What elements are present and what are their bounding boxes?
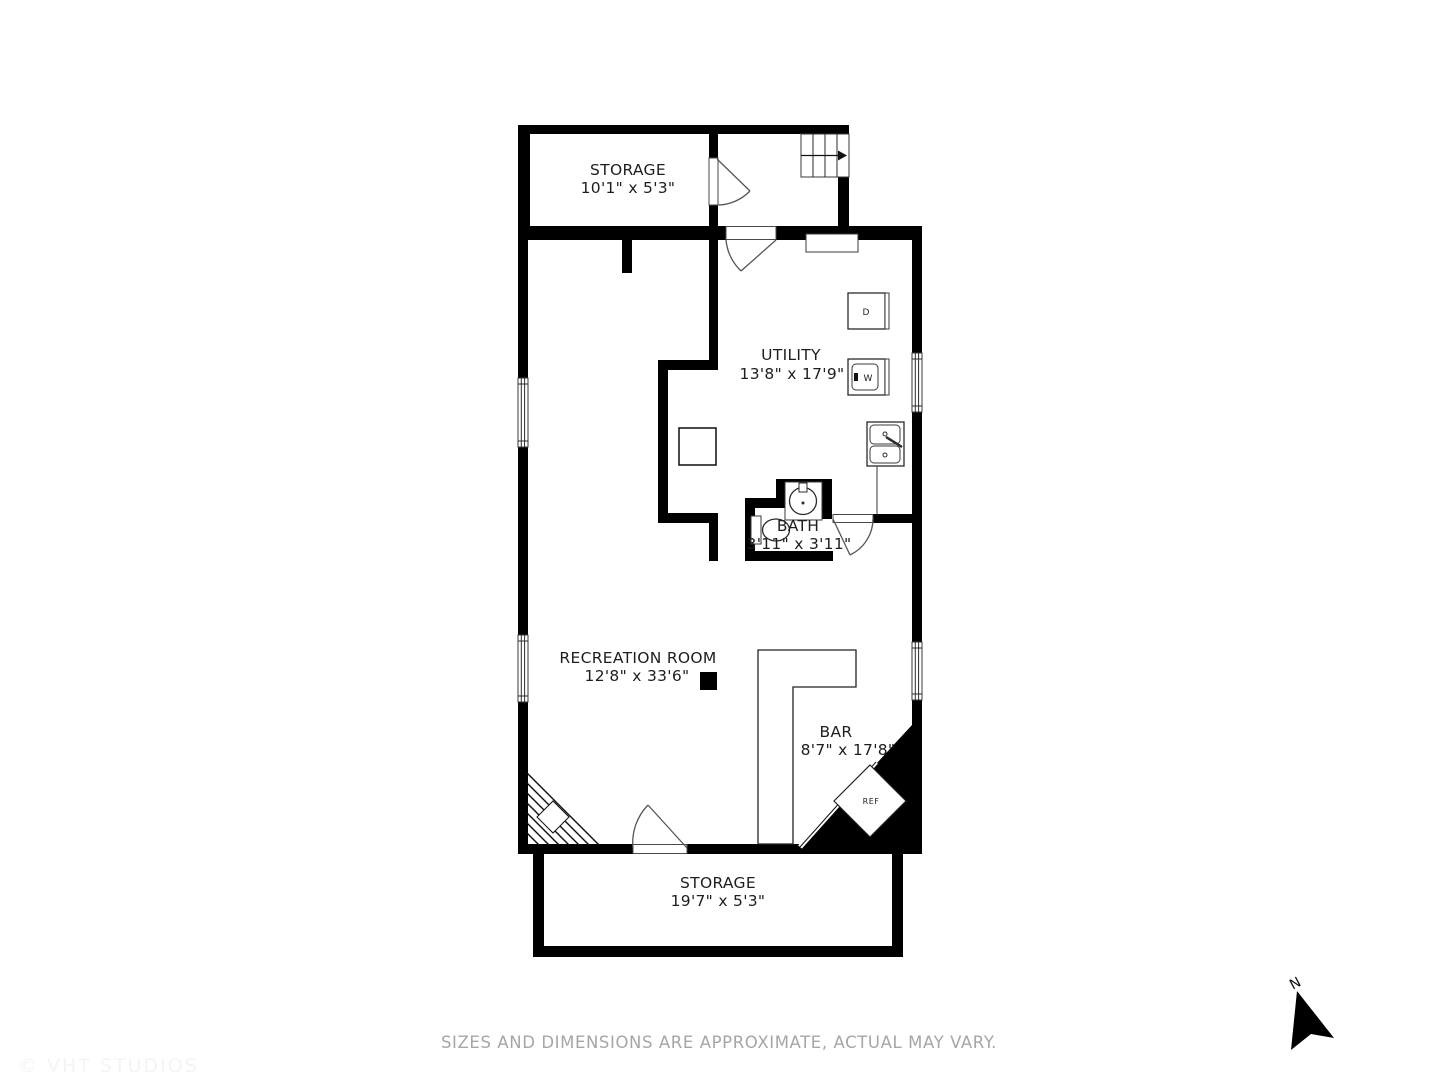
compass: N bbox=[1287, 974, 1334, 1050]
wall-bath-door-right bbox=[873, 514, 920, 523]
wall-left-2 bbox=[518, 447, 528, 635]
washer: W bbox=[848, 359, 889, 395]
room-dims: 8'7" x 17'8" bbox=[801, 741, 896, 759]
room-name: STORAGE bbox=[590, 161, 666, 179]
wall-storage-bottom-left bbox=[533, 854, 544, 957]
wall-top-block-top bbox=[518, 125, 849, 134]
wall-right-3 bbox=[912, 700, 922, 727]
wall-main-bottom-left bbox=[518, 844, 633, 854]
room-label-storage-bottom: STORAGE 19'7" x 5'3" bbox=[671, 874, 766, 910]
washer-label: W bbox=[864, 374, 873, 384]
room-name: RECREATION ROOM bbox=[559, 649, 716, 667]
wall-utility-left-lower bbox=[709, 513, 718, 561]
watermark-logo: © VHT STUDIOS bbox=[18, 1055, 199, 1077]
wall-left-3 bbox=[518, 702, 528, 854]
room-dims: 13'8" x 17'9" bbox=[740, 365, 845, 383]
room-name: BAR bbox=[820, 723, 853, 741]
wall-left-1 bbox=[518, 240, 528, 378]
dryer: D bbox=[848, 293, 889, 329]
door-storage-top bbox=[709, 158, 750, 205]
room-name: STORAGE bbox=[680, 874, 756, 892]
walls bbox=[518, 125, 922, 957]
room-dims: 3'11" x 3'11" bbox=[747, 535, 852, 553]
dryer-label: D bbox=[863, 308, 870, 318]
shelf bbox=[806, 234, 858, 252]
wall-stub bbox=[622, 240, 632, 273]
room-dims: 10'1" x 5'3" bbox=[581, 179, 676, 197]
bath-sink bbox=[785, 482, 822, 520]
window-right-upper bbox=[912, 353, 922, 412]
room-label-recreation: RECREATION ROOM 12'8" x 33'6" bbox=[559, 649, 716, 685]
wall-right-2 bbox=[912, 412, 922, 642]
disclaimer-text: SIZES AND DIMENSIONS ARE APPROXIMATE, AC… bbox=[441, 1033, 997, 1052]
room-dims: 19'7" x 5'3" bbox=[671, 892, 766, 910]
door-utility bbox=[726, 227, 776, 272]
room-label-storage-top: STORAGE 10'1" x 5'3" bbox=[581, 161, 676, 197]
corner-stair-hatch bbox=[527, 773, 599, 845]
wall-storage-bottom-bottom bbox=[533, 946, 903, 957]
support-post bbox=[700, 672, 717, 690]
window-right-lower bbox=[912, 642, 922, 700]
room-name: UTILITY bbox=[761, 346, 821, 364]
wall-right-1 bbox=[912, 240, 922, 353]
window-left-lower bbox=[518, 635, 528, 702]
wall-storage-divider-upper bbox=[709, 134, 718, 158]
compass-north-label: N bbox=[1287, 974, 1304, 993]
wall-main-top-left bbox=[518, 226, 726, 240]
room-name: BATH bbox=[777, 517, 819, 535]
room-label-utility: UTILITY 13'8" x 17'9" bbox=[740, 346, 845, 383]
floor-plan-drawing: D W bbox=[0, 0, 1440, 1080]
door-storage-bottom bbox=[633, 805, 687, 854]
refrigerator-label: REF bbox=[863, 797, 880, 806]
wall-top-block-left bbox=[518, 125, 530, 240]
window-left-upper bbox=[518, 378, 528, 447]
staircase bbox=[801, 134, 849, 177]
wall-utility-left bbox=[658, 360, 668, 523]
room-label-bar: BAR 8'7" x 17'8" bbox=[801, 723, 896, 759]
room-dims: 12'8" x 33'6" bbox=[585, 667, 690, 685]
wall-storage-bottom-right bbox=[892, 854, 903, 957]
compass-arrow-icon bbox=[1291, 991, 1334, 1050]
laundry-sink bbox=[867, 422, 904, 466]
floor-plan-page: D W bbox=[0, 0, 1440, 1080]
wall-bath-right bbox=[822, 479, 832, 519]
wall-utility-left-upper bbox=[709, 240, 718, 365]
utility-post bbox=[679, 428, 716, 465]
